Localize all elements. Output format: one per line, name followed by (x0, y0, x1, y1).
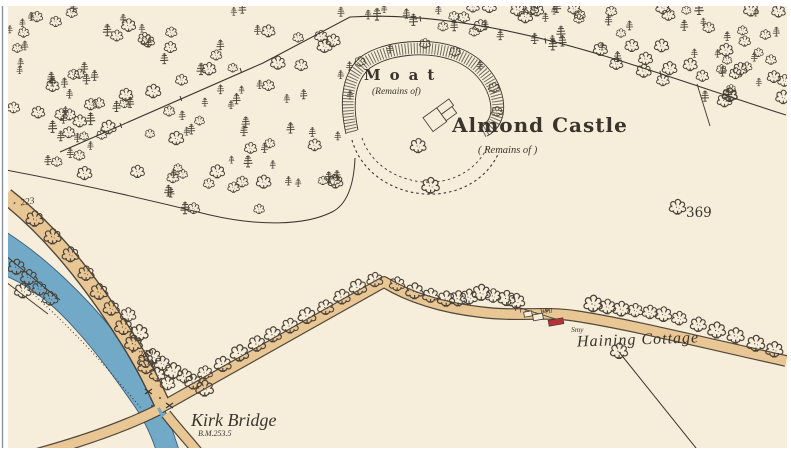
label-castle-remains: ( Remains of ) (478, 145, 538, 156)
spot-dot-239 (132, 351, 134, 353)
label-kirk-bridge: Kirk Bridge (190, 410, 277, 430)
label-moat: Moat (364, 66, 443, 84)
label-kirk-bridge-benchmark: B.M.253.5 (198, 429, 232, 438)
label-moat-remains: (Remains of) (372, 86, 421, 97)
spot-number-369: 369 (686, 205, 712, 221)
historic-map-page: Moat (Remains of) Almond Castle ( Remain… (0, 0, 791, 460)
spot-number-239: 239 (138, 348, 155, 361)
label-almond-castle: Almond Castle (451, 113, 628, 137)
spot-dot-223 (14, 202, 16, 204)
label-well: Well (540, 307, 553, 316)
label-smithy: Smy (571, 325, 584, 334)
historic-map-svg: Moat (Remains of) Almond Castle ( Remain… (0, 0, 791, 460)
